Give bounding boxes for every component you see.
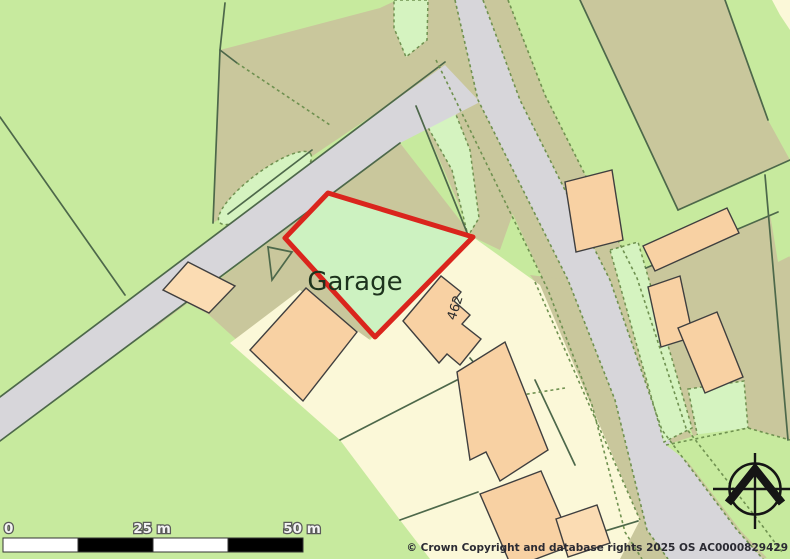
building-east-1 bbox=[565, 170, 623, 252]
site-plan-map: Garage 462 0 25 m 50 m © Crown Copyright… bbox=[0, 0, 790, 559]
map-canvas: Garage 462 0 25 m 50 m © Crown Copyright… bbox=[0, 0, 790, 559]
scale-label-25: 25 m bbox=[133, 521, 171, 537]
scale-label-0: 0 bbox=[4, 521, 13, 537]
scale-label-50: 50 m bbox=[283, 521, 321, 537]
garage-plot-label: Garage bbox=[307, 267, 402, 297]
copyright-text: © Crown Copyright and database rights 20… bbox=[407, 542, 788, 554]
